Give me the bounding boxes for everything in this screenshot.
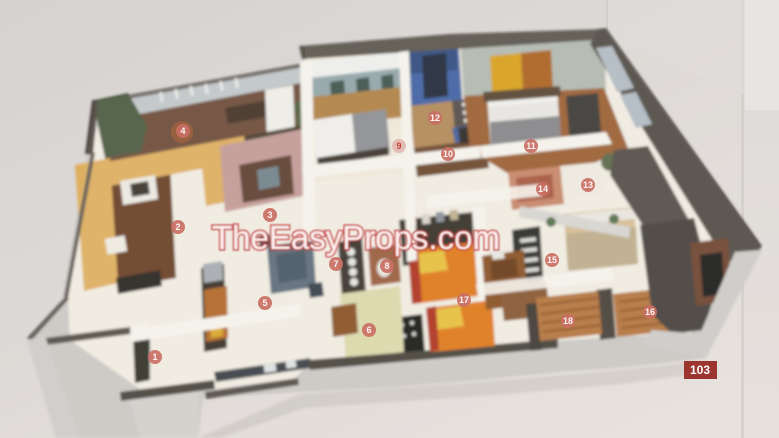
svg-text:15: 15 bbox=[547, 255, 557, 265]
svg-text:18: 18 bbox=[563, 316, 573, 326]
svg-text:10: 10 bbox=[443, 149, 453, 159]
svg-text:7: 7 bbox=[333, 259, 338, 269]
svg-text:11: 11 bbox=[526, 141, 536, 151]
svg-text:13: 13 bbox=[583, 180, 593, 190]
svg-text:2: 2 bbox=[175, 222, 180, 232]
svg-text:5: 5 bbox=[262, 298, 267, 308]
svg-text:6: 6 bbox=[366, 325, 371, 335]
svg-text:1: 1 bbox=[152, 352, 157, 362]
svg-text:4: 4 bbox=[180, 126, 185, 136]
svg-text:103: 103 bbox=[690, 363, 710, 377]
svg-text:16: 16 bbox=[645, 307, 655, 317]
svg-text:9: 9 bbox=[396, 141, 401, 151]
svg-text:12: 12 bbox=[430, 113, 440, 123]
svg-text:8: 8 bbox=[384, 261, 389, 271]
svg-text:14: 14 bbox=[538, 184, 548, 194]
svg-text:TheEasyProps.com: TheEasyProps.com bbox=[212, 219, 500, 256]
svg-text:17: 17 bbox=[459, 295, 469, 305]
